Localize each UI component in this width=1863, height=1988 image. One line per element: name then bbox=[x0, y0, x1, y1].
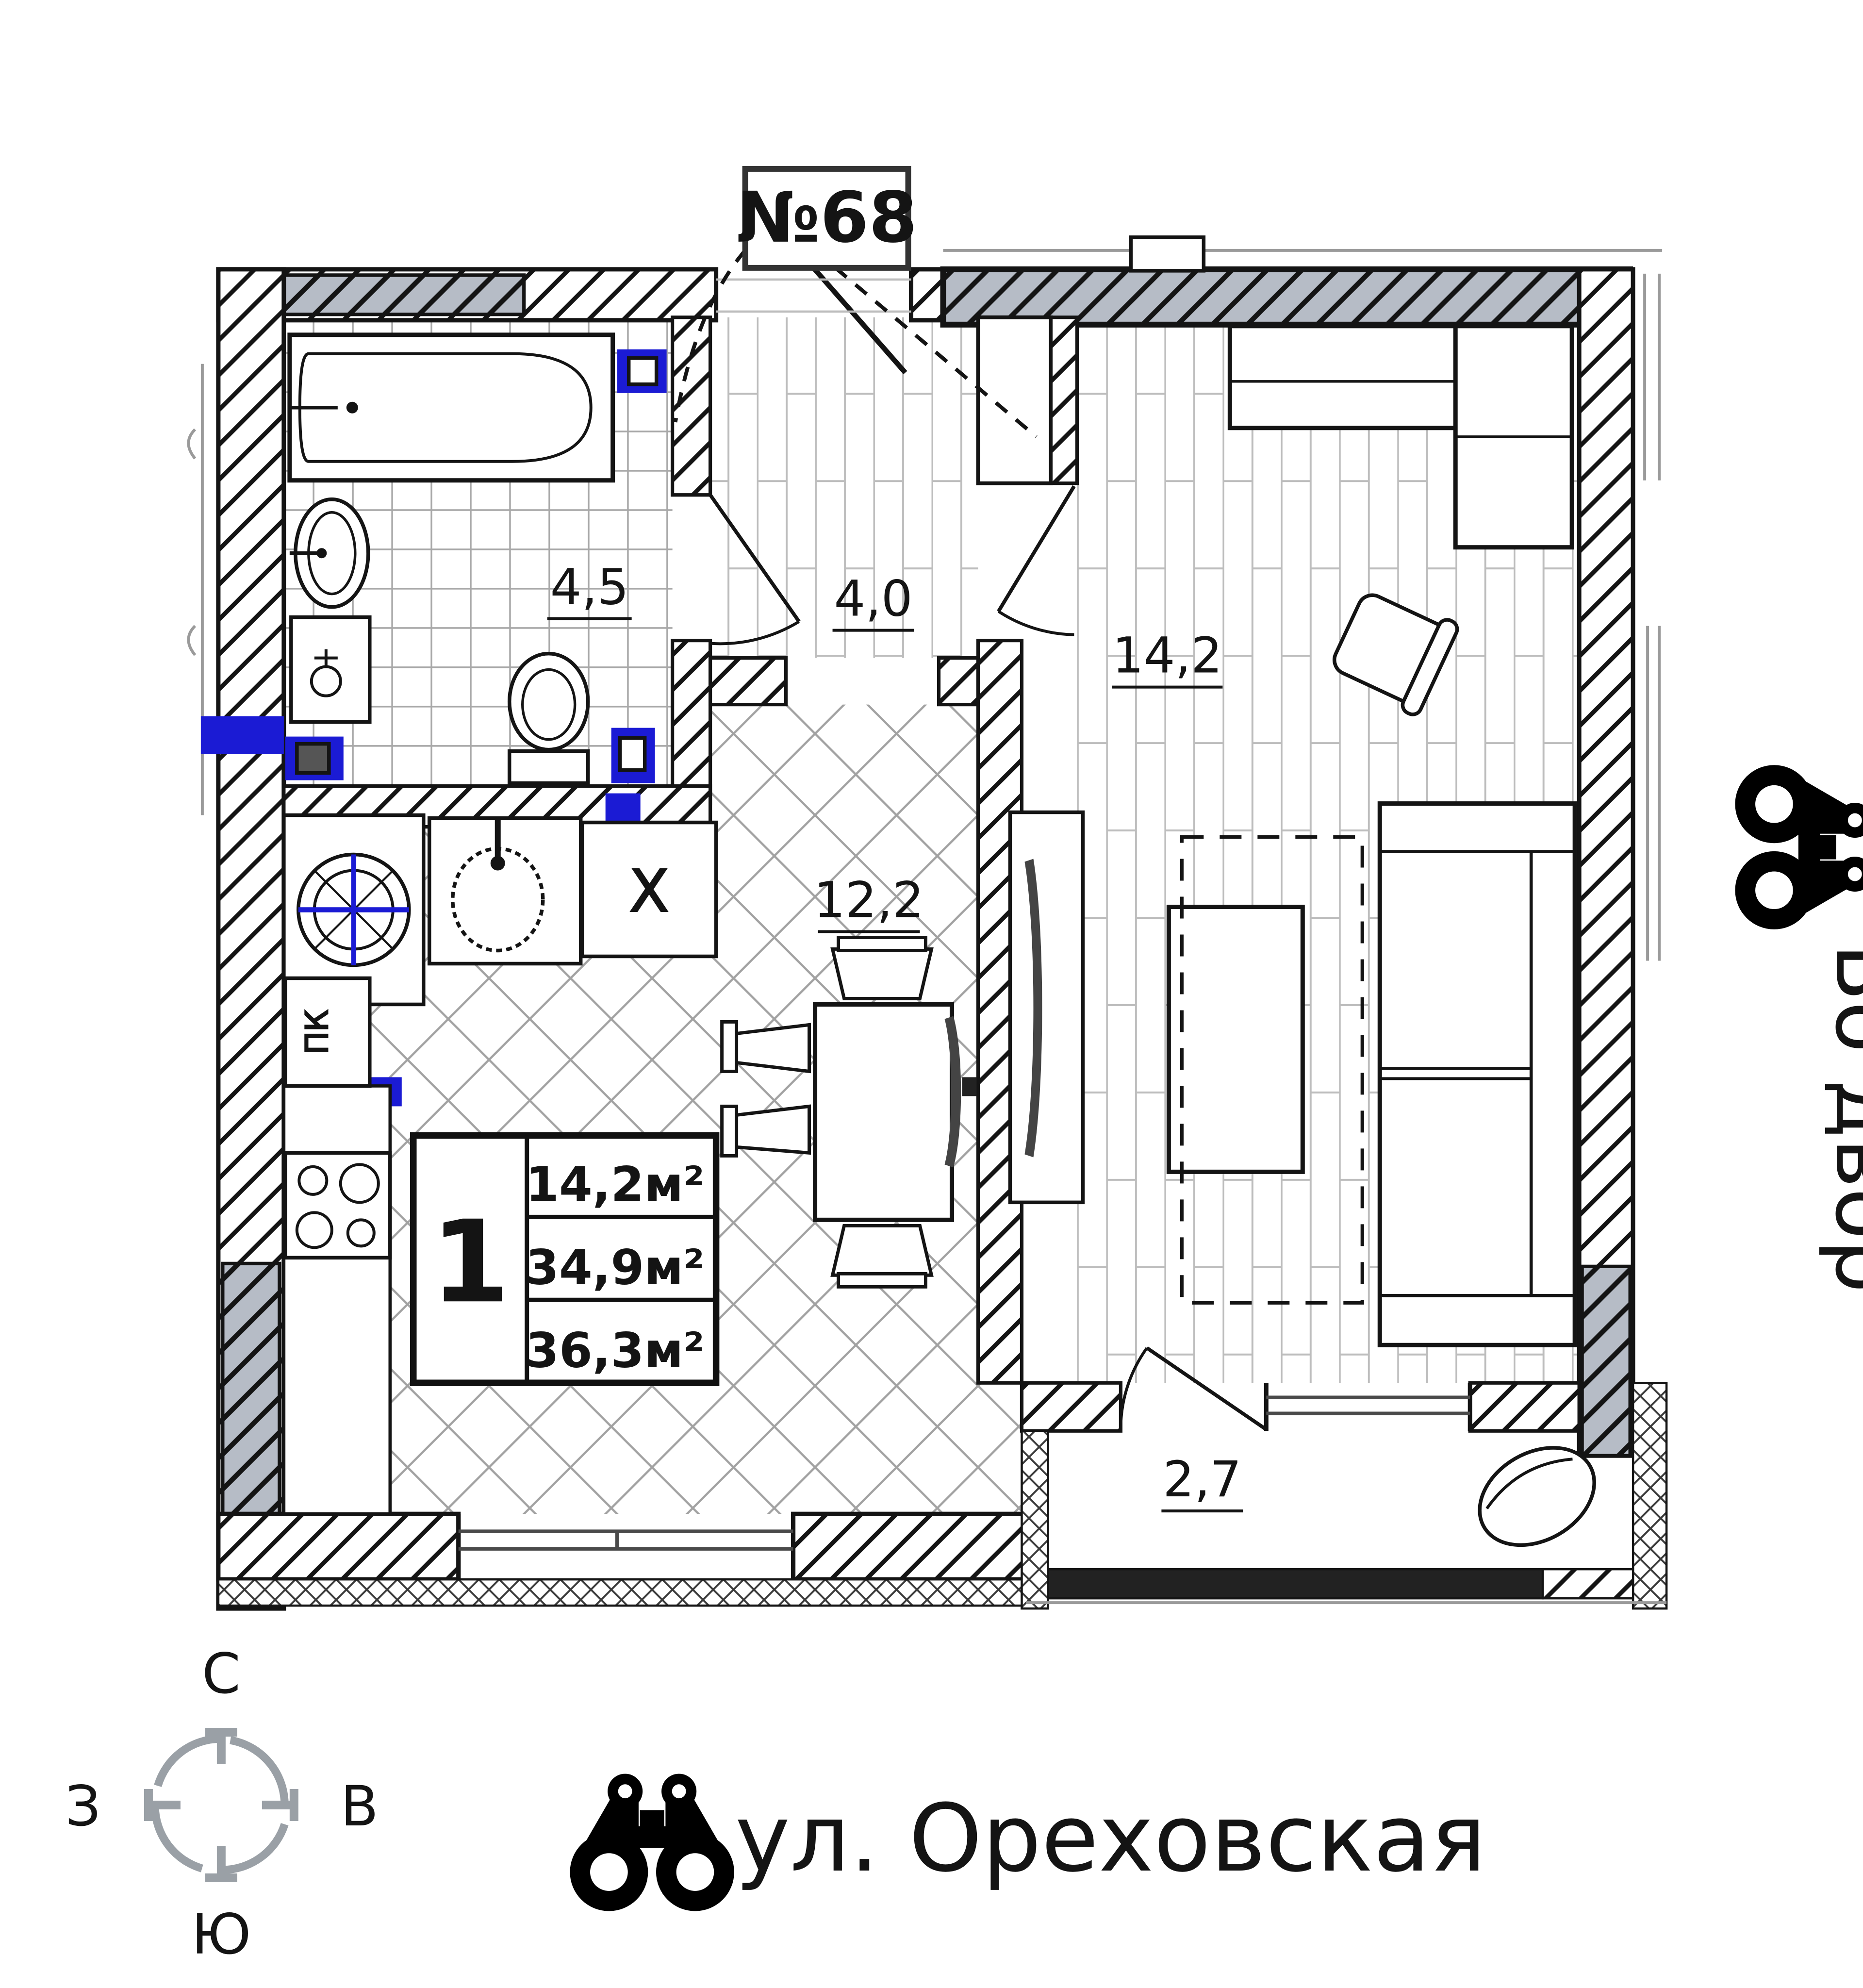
closet bbox=[978, 317, 1051, 483]
wall-bottom-left bbox=[218, 1514, 459, 1579]
riser-kitchen-top bbox=[606, 794, 641, 823]
wall-left-gray bbox=[223, 1263, 280, 1514]
balcony-wall-left bbox=[1022, 1431, 1048, 1608]
balcony-rail-corner bbox=[1543, 1569, 1633, 1598]
insulation-strip-bottom bbox=[218, 1579, 1026, 1606]
apartment-number: №68 bbox=[736, 177, 918, 258]
room-count: 1 bbox=[430, 1196, 510, 1328]
living-area-value: 14,2м² bbox=[526, 1157, 704, 1212]
toilet-bowl bbox=[510, 654, 588, 750]
courtyard-label: Во двор bbox=[1816, 943, 1863, 1293]
wardrobe-top bbox=[1230, 326, 1458, 428]
vent-shaft bbox=[1131, 237, 1204, 271]
kitchen-sink-box bbox=[429, 818, 581, 964]
riser-left-wall bbox=[201, 716, 284, 754]
balcony-wall-right bbox=[1633, 1383, 1666, 1608]
compass-south: Ю bbox=[191, 1902, 251, 1967]
balcony-area-label: 2,7 bbox=[1163, 1451, 1241, 1508]
total-area-value: 36,3м² bbox=[526, 1323, 704, 1378]
wall-hall-kitchen-left bbox=[710, 658, 786, 705]
wall-bathroom-right-lower bbox=[673, 641, 710, 804]
courtyard-annotation: Во двор bbox=[1735, 765, 1863, 1293]
kitchen-counter bbox=[284, 1086, 390, 1514]
hallway-area-label: 4,0 bbox=[834, 570, 912, 628]
area-no-balcony-value: 34,9м² bbox=[526, 1240, 704, 1295]
compass-north: С bbox=[202, 1641, 241, 1706]
fire-cabinet-label: ПК bbox=[299, 1010, 335, 1054]
living-door-leaf bbox=[998, 486, 1074, 612]
toilet-tank bbox=[510, 751, 588, 783]
wall-top-left-gray bbox=[247, 275, 524, 315]
fridge-label: X bbox=[629, 858, 669, 926]
floor-plan-canvas: X ПК bbox=[0, 0, 1863, 1987]
wall-right-gray bbox=[1582, 1266, 1630, 1456]
coffee-table bbox=[1169, 907, 1302, 1172]
street-annotation: ул. Ореховская bbox=[570, 1774, 1486, 1911]
balcony-rail bbox=[1048, 1569, 1543, 1598]
wall-living-balcony-left bbox=[1022, 1383, 1121, 1431]
courtyard-binoculars-icon bbox=[1735, 765, 1863, 929]
tv-stand bbox=[1010, 812, 1083, 1203]
bathtub bbox=[290, 335, 613, 480]
living-balcony-window bbox=[1266, 1397, 1470, 1413]
apartment-info-box: 1 14,2м² 34,9м² 36,3м² bbox=[413, 1135, 716, 1383]
compass-east: В bbox=[341, 1774, 379, 1839]
kitchen-window bbox=[459, 1531, 793, 1549]
wall-living-balcony-right bbox=[1470, 1383, 1579, 1431]
sofa bbox=[1380, 804, 1575, 1345]
street-name: ул. Ореховская bbox=[735, 1785, 1486, 1893]
compass: С В Ю З bbox=[65, 1641, 378, 1967]
compass-tick-east bbox=[262, 1789, 294, 1821]
bathroom-area-label: 4,5 bbox=[550, 559, 629, 616]
living-room-area-label: 14,2 bbox=[1112, 627, 1222, 685]
wall-hall-kitchen-right bbox=[939, 658, 978, 705]
kitchen-area-label: 12,2 bbox=[814, 872, 924, 929]
street-binoculars-icon bbox=[570, 1774, 734, 1911]
washing-machine bbox=[291, 617, 370, 722]
wall-bottom-right bbox=[793, 1514, 1026, 1579]
compass-west: З bbox=[65, 1774, 100, 1839]
dining-table bbox=[815, 1004, 952, 1220]
wall-closet-strip bbox=[1051, 317, 1077, 483]
living-door-arc bbox=[998, 612, 1074, 635]
